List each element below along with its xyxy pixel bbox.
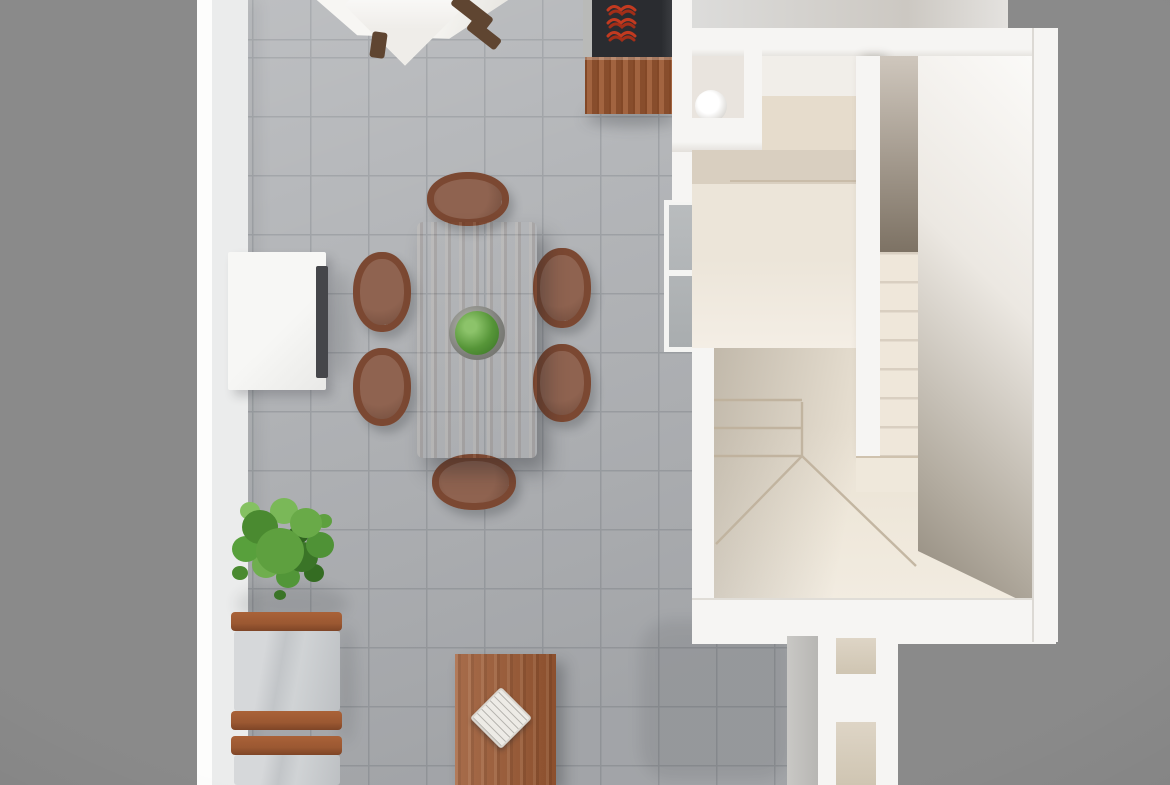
floor-plan-render — [0, 0, 1170, 785]
vignette-overlay — [0, 0, 1170, 785]
